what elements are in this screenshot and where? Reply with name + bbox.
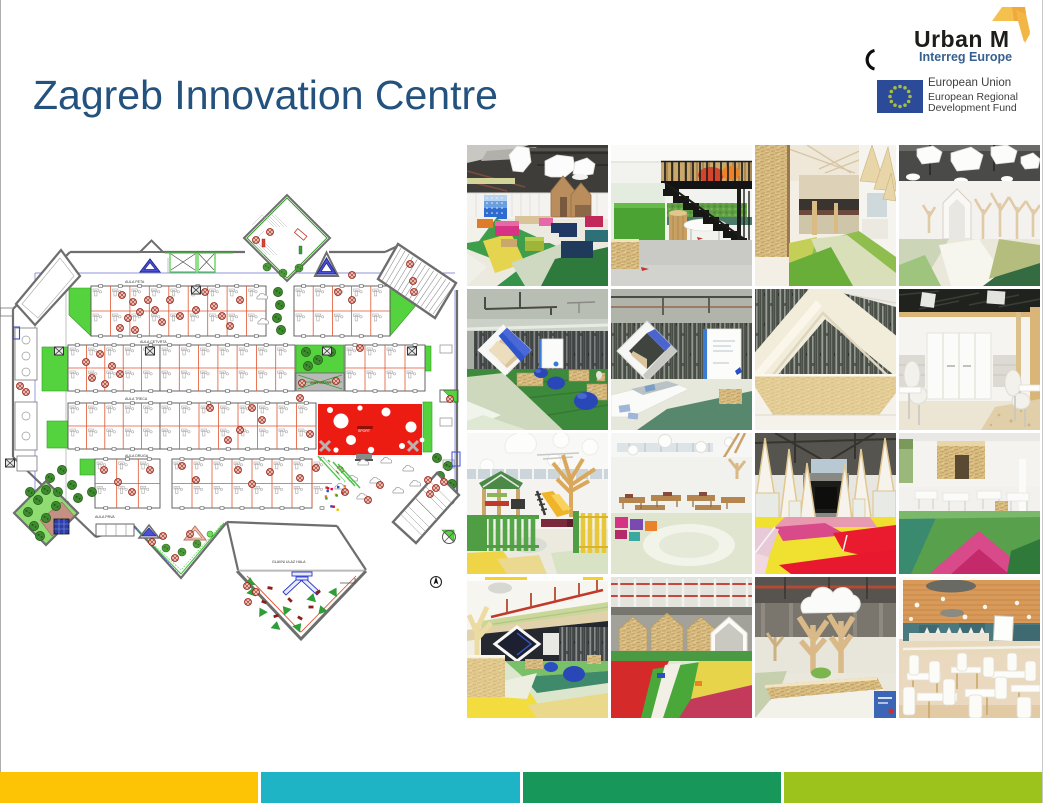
- svg-text:SPORT: SPORT: [358, 429, 371, 433]
- svg-text:AMFITEATAR: AMFITEATAR: [310, 381, 332, 385]
- svg-text:AULA PETA: AULA PETA: [125, 280, 145, 284]
- svg-text:AULA PRVA: AULA PRVA: [95, 515, 115, 519]
- svg-text:AULA TRECA: AULA TRECA: [125, 397, 148, 401]
- svg-text:AULA CETVRTA: AULA CETVRTA: [140, 340, 167, 344]
- svg-text:AULA DRUGA: AULA DRUGA: [125, 454, 149, 458]
- svg-text:GLAVNI ULAZ HALA: GLAVNI ULAZ HALA: [272, 560, 306, 564]
